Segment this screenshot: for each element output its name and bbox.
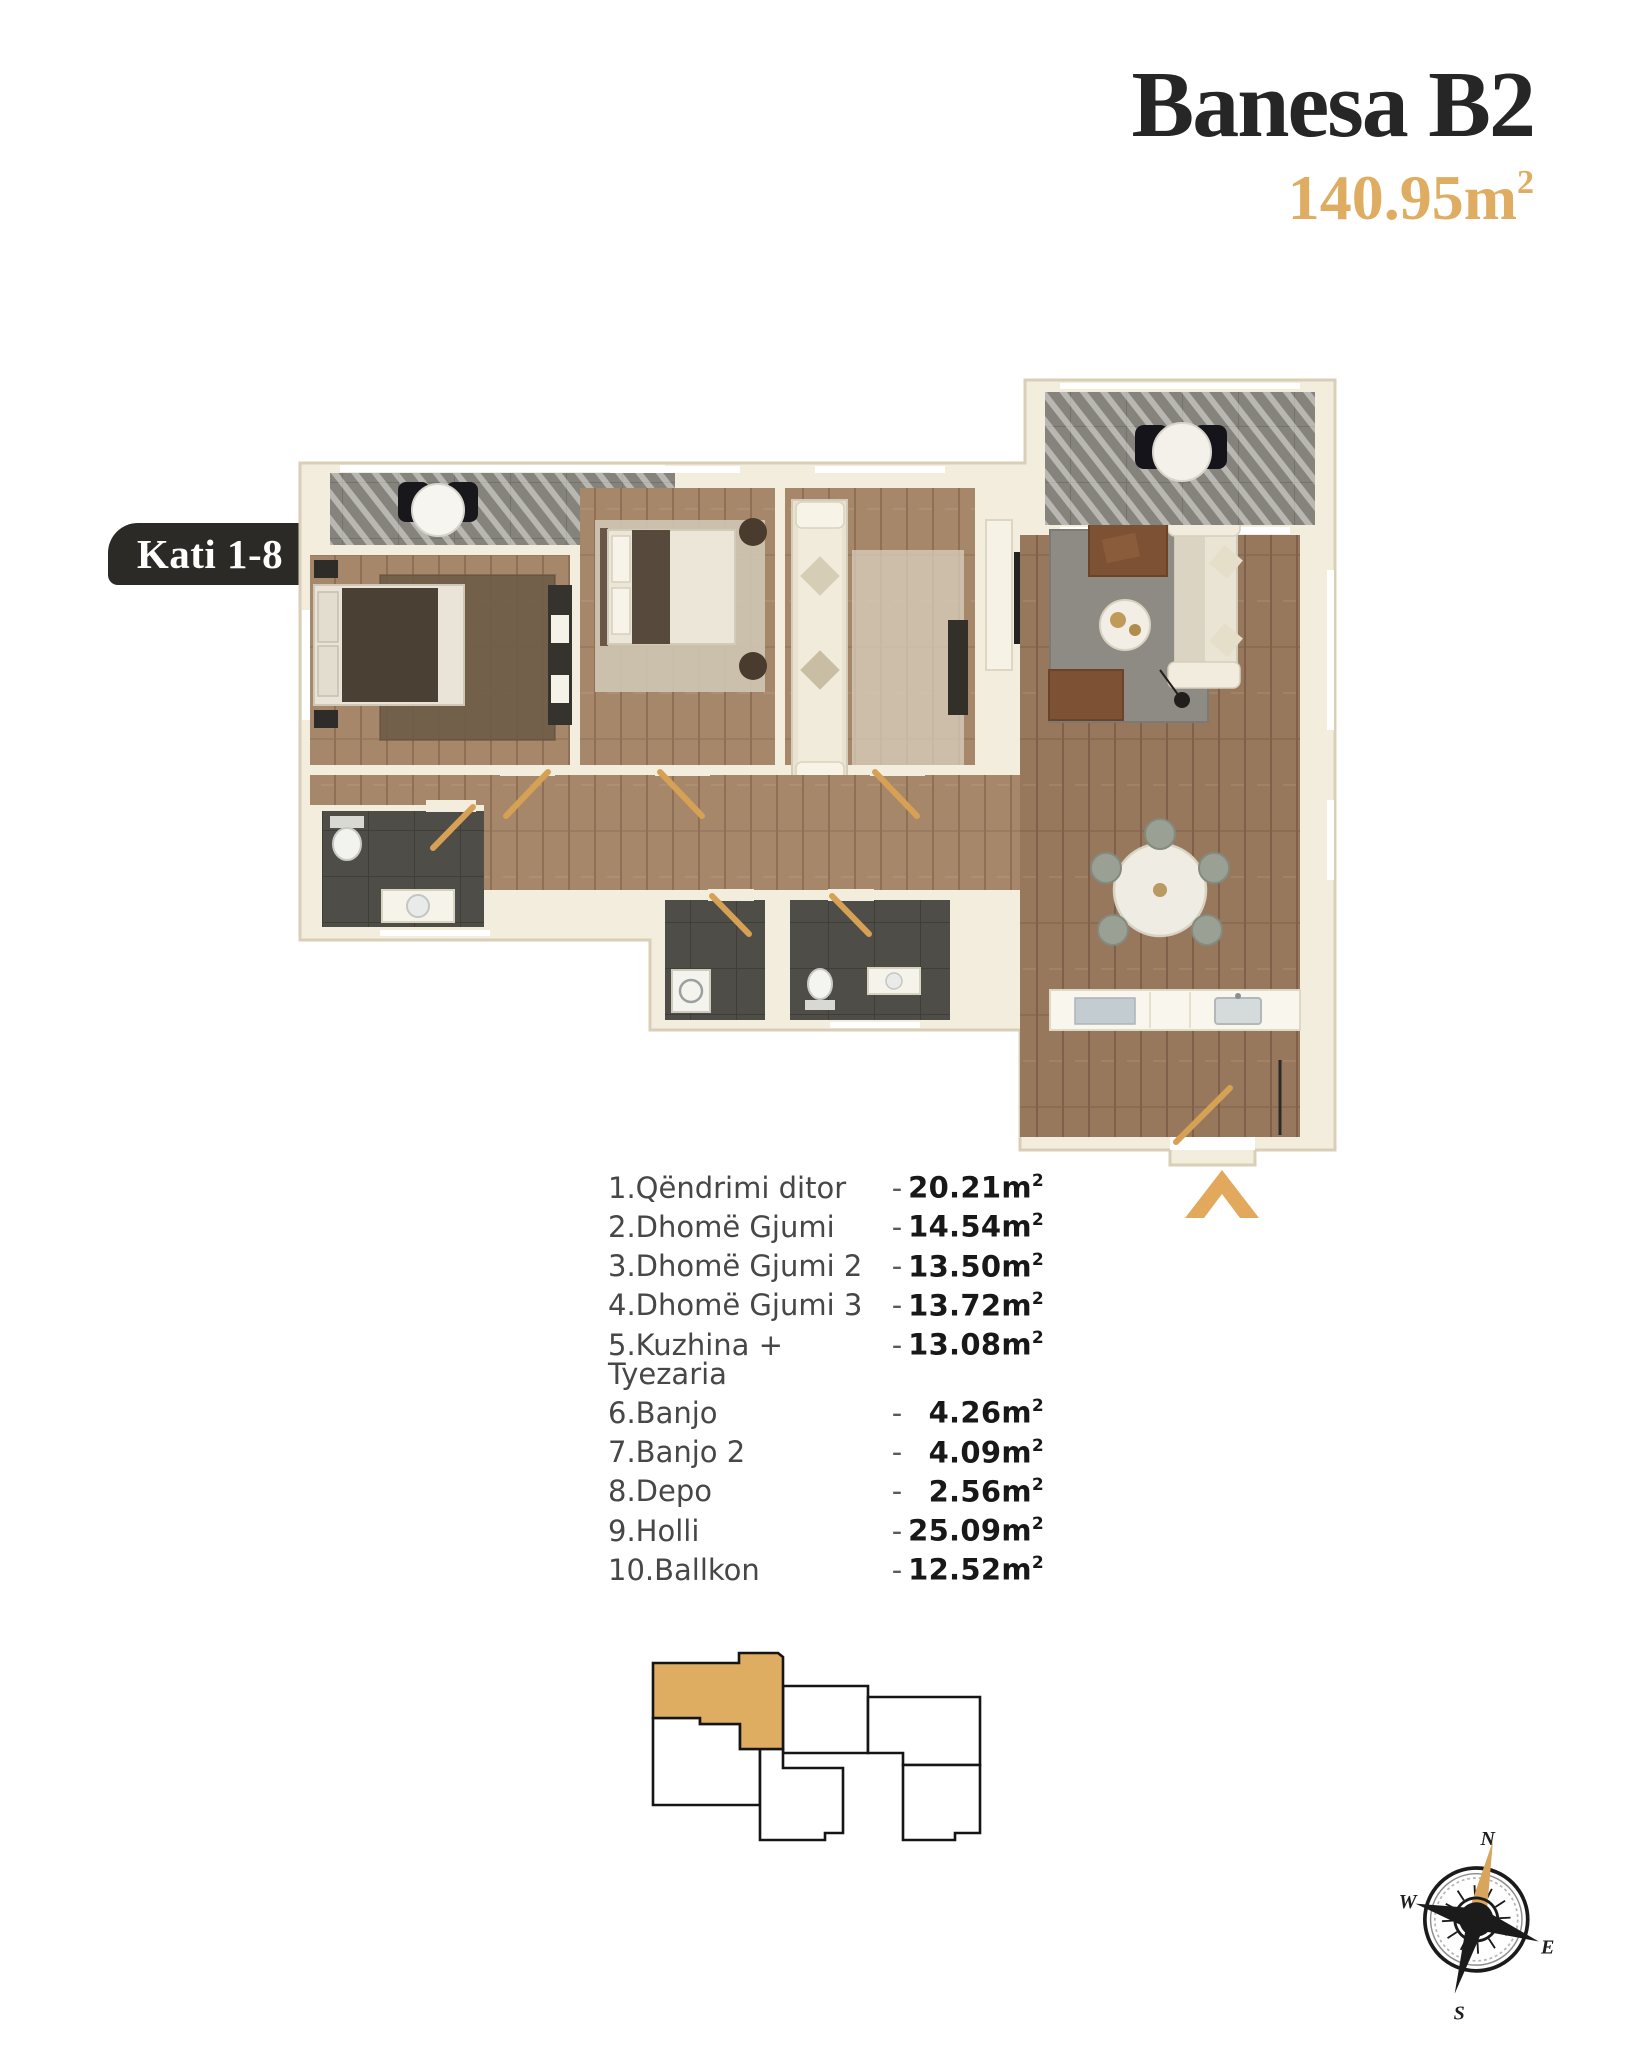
- legend-row: 4.Dhomë Gjumi 3-13.72m2: [608, 1286, 1044, 1321]
- area-unit: m: [1464, 162, 1517, 233]
- floor-plan-drawing: [230, 370, 1340, 1220]
- tv-console: [986, 520, 1012, 670]
- dash: -: [886, 1213, 908, 1242]
- room-label: 10.Ballkon: [608, 1556, 886, 1585]
- sideboard: [948, 620, 968, 715]
- legend-row: 5.Kuzhina + Tyezaria-13.08m2: [608, 1325, 1044, 1389]
- area-value: 140.95: [1288, 162, 1464, 233]
- room-value: 2.56m2: [908, 1472, 1044, 1507]
- room-value: 4.09m2: [908, 1433, 1044, 1468]
- apartment-area: 140.95m2: [1288, 166, 1534, 230]
- room-value: 20.21m2: [908, 1168, 1044, 1203]
- bedroom-2: [580, 466, 775, 765]
- room-value: 14.54m2: [908, 1207, 1044, 1242]
- dash: -: [886, 1331, 908, 1360]
- living-room: [986, 508, 1334, 1150]
- tv: [1014, 552, 1020, 644]
- bathroom-3: [790, 900, 950, 1028]
- room-value: 25.09m2: [908, 1511, 1044, 1546]
- legend-row: 10.Ballkon-12.52m2: [608, 1550, 1044, 1585]
- area-sup: 2: [1517, 164, 1534, 201]
- locator-unit: [760, 1749, 843, 1840]
- dash: -: [886, 1291, 908, 1320]
- room-label: 7.Banjo 2: [608, 1438, 886, 1467]
- legend-row: 6.Banjo-4.26m2: [608, 1393, 1044, 1428]
- dash: -: [886, 1252, 908, 1281]
- dash: -: [886, 1517, 908, 1546]
- floor-plan: [230, 370, 1340, 1220]
- entrance-arrow: [1185, 1170, 1259, 1218]
- room-label: 4.Dhomë Gjumi 3: [608, 1291, 886, 1320]
- page-title: Banesa B2: [1132, 58, 1534, 152]
- balcony-right: [1045, 383, 1315, 525]
- room-label: 9.Holli: [608, 1517, 886, 1546]
- dash: -: [886, 1399, 908, 1428]
- dash: -: [886, 1174, 908, 1203]
- room-value: 13.08m2: [908, 1325, 1044, 1360]
- wardrobe: [548, 585, 572, 725]
- building-locator: [640, 1646, 1060, 1896]
- locator-unit: [783, 1686, 868, 1753]
- locator-unit: [868, 1697, 980, 1765]
- room-label: 3.Dhomë Gjumi 2: [608, 1252, 886, 1281]
- bedroom-1: [302, 555, 572, 765]
- legend-row: 8.Depo-2.56m2: [608, 1472, 1044, 1507]
- compass-rose: N W E S: [1392, 1828, 1572, 2028]
- compass-label-s: S: [1454, 2002, 1465, 2024]
- bathroom-2: [665, 900, 765, 1020]
- compass-label-e: E: [1540, 1937, 1554, 1959]
- ottoman-2: [1049, 670, 1123, 720]
- compass-label-n: N: [1479, 1828, 1496, 1850]
- room-label: 1.Qëndrimi ditor: [608, 1174, 886, 1203]
- locator-unit: [903, 1765, 980, 1840]
- legend-row: 3.Dhomë Gjumi 2-13.50m2: [608, 1247, 1044, 1282]
- room-value: 12.52m2: [908, 1550, 1044, 1585]
- compass-label-w: W: [1399, 1891, 1418, 1913]
- room-label: 6.Banjo: [608, 1399, 886, 1428]
- coffee-table: [1100, 600, 1150, 650]
- room-value: 13.72m2: [908, 1286, 1044, 1321]
- legend-row: 1.Qëndrimi ditor-20.21m2: [608, 1168, 1044, 1203]
- dash: -: [886, 1556, 908, 1585]
- compass-dial: [1399, 1828, 1557, 2008]
- legend-row: 2.Dhomë Gjumi-14.54m2: [608, 1207, 1044, 1242]
- legend-row: 7.Banjo 2-4.09m2: [608, 1433, 1044, 1468]
- kitchen-counter: [1050, 990, 1300, 1030]
- room-legend: 1.Qëndrimi ditor-20.21m2 2.Dhomë Gjumi-1…: [608, 1168, 1044, 1590]
- room-value: 4.26m2: [908, 1393, 1044, 1428]
- room-label: 2.Dhomë Gjumi: [608, 1213, 886, 1242]
- room-label: 5.Kuzhina + Tyezaria: [608, 1331, 886, 1389]
- bathroom-1: [322, 811, 490, 936]
- dash: -: [886, 1477, 908, 1506]
- room-value: 13.50m2: [908, 1247, 1044, 1282]
- bedroom-3: [785, 466, 975, 790]
- room-label: 8.Depo: [608, 1477, 886, 1506]
- legend-row: 9.Holli-25.09m2: [608, 1511, 1044, 1546]
- dash: -: [886, 1438, 908, 1467]
